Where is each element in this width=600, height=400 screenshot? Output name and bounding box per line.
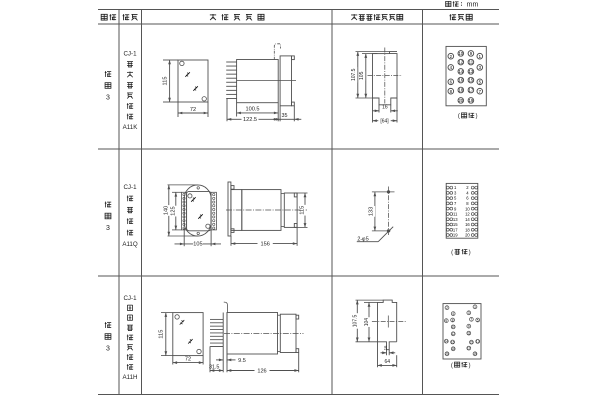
svg-text:): ) — [469, 249, 471, 256]
svg-text:14: 14 — [458, 69, 463, 74]
svg-text:A11K: A11K — [123, 124, 139, 131]
svg-text:12: 12 — [465, 212, 470, 217]
svg-text:107.5: 107.5 — [352, 314, 358, 327]
svg-text:16: 16 — [382, 104, 388, 110]
svg-text:12: 12 — [458, 60, 463, 65]
svg-text:9.5: 9.5 — [238, 358, 246, 364]
svg-text:4: 4 — [452, 312, 454, 316]
svg-text:72: 72 — [185, 356, 191, 362]
svg-text:): ) — [468, 362, 470, 369]
svg-text:16: 16 — [458, 78, 463, 83]
svg-text:19: 19 — [469, 98, 474, 103]
svg-text:72: 72 — [190, 107, 196, 113]
svg-text:10: 10 — [458, 51, 463, 56]
svg-text:100.5: 100.5 — [246, 107, 260, 113]
svg-text:20: 20 — [465, 233, 470, 238]
svg-text:A11H: A11H — [122, 374, 137, 381]
svg-text:126: 126 — [257, 368, 266, 374]
svg-text:CJ-1: CJ-1 — [123, 295, 137, 302]
svg-text:10: 10 — [465, 206, 470, 211]
svg-text:115: 115 — [162, 77, 168, 86]
svg-text:1: 1 — [474, 305, 476, 309]
svg-text:11: 11 — [467, 331, 471, 335]
svg-text:13: 13 — [469, 69, 474, 74]
svg-text:105: 105 — [359, 71, 365, 80]
svg-text:35: 35 — [282, 113, 288, 119]
svg-text:mm: mm — [467, 1, 479, 8]
svg-text:31.5: 31.5 — [209, 364, 220, 370]
svg-text:14: 14 — [445, 340, 449, 344]
svg-text:2: 2 — [446, 306, 448, 310]
svg-text:11: 11 — [469, 60, 474, 65]
svg-text:12: 12 — [451, 332, 455, 336]
svg-text:20: 20 — [458, 98, 463, 103]
svg-text:13: 13 — [476, 340, 480, 344]
svg-text:16: 16 — [465, 222, 470, 227]
svg-text:5: 5 — [477, 318, 479, 322]
svg-text:18: 18 — [458, 88, 463, 93]
svg-text:3: 3 — [106, 225, 110, 232]
svg-text:A11Q: A11Q — [122, 241, 138, 248]
svg-text:17: 17 — [469, 88, 474, 93]
svg-text:18: 18 — [465, 227, 470, 232]
svg-text:3: 3 — [106, 95, 110, 102]
svg-text:115: 115 — [159, 330, 165, 339]
svg-text:10: 10 — [451, 325, 455, 329]
svg-text:115: 115 — [299, 206, 305, 215]
svg-text:133: 133 — [369, 207, 375, 216]
svg-text:5: 5 — [366, 236, 369, 242]
svg-text:64: 64 — [385, 359, 391, 365]
svg-text:107.5: 107.5 — [351, 68, 357, 81]
svg-text:14: 14 — [465, 217, 470, 222]
svg-text:3: 3 — [468, 311, 470, 315]
svg-text:19: 19 — [453, 233, 458, 238]
svg-text:6: 6 — [445, 319, 447, 323]
svg-text:156: 156 — [261, 241, 270, 247]
svg-text:17: 17 — [467, 346, 471, 350]
svg-text:16: 16 — [451, 340, 455, 344]
svg-text:122.5: 122.5 — [243, 117, 257, 123]
svg-text:104: 104 — [364, 318, 370, 327]
svg-text:15: 15 — [470, 341, 474, 345]
svg-text:18: 18 — [451, 347, 455, 351]
svg-text:125: 125 — [170, 206, 176, 215]
svg-text:8: 8 — [452, 318, 454, 322]
svg-text:15: 15 — [469, 78, 474, 83]
svg-text:CJ-1: CJ-1 — [123, 184, 137, 191]
svg-text:105: 105 — [193, 242, 202, 248]
svg-text:11: 11 — [453, 212, 458, 217]
svg-text:3: 3 — [106, 346, 110, 353]
svg-text:13: 13 — [453, 217, 458, 222]
svg-text:17: 17 — [453, 227, 458, 232]
svg-text:CJ-1: CJ-1 — [123, 51, 137, 58]
svg-text:7: 7 — [471, 318, 473, 322]
svg-text:9: 9 — [468, 325, 470, 329]
svg-text:140: 140 — [164, 206, 170, 215]
svg-text:19: 19 — [473, 352, 477, 356]
svg-text:16: 16 — [383, 345, 388, 350]
svg-text:15: 15 — [453, 222, 458, 227]
svg-text:[64]: [64] — [380, 118, 389, 124]
svg-text:): ) — [475, 113, 477, 120]
svg-text:20: 20 — [445, 352, 449, 356]
